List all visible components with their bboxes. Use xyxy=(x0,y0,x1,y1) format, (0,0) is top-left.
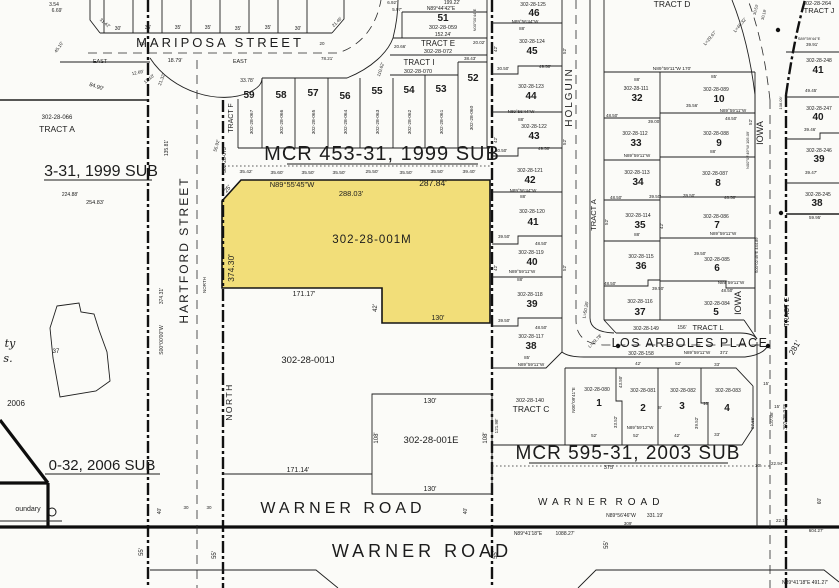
north-label: NORTH xyxy=(224,383,234,421)
map-label: 6.92' xyxy=(387,0,397,5)
map-label: 1 xyxy=(596,398,602,409)
map-label: N89°59'12"W xyxy=(627,425,655,430)
map-label: 130' xyxy=(423,398,436,405)
map-label: 35' xyxy=(145,25,152,31)
map-label: 39.50' xyxy=(498,234,510,239)
map-label: 41 xyxy=(527,217,539,228)
southwest-lines xyxy=(0,303,160,521)
map-label: 20 xyxy=(139,41,145,46)
map-label: 35.50' xyxy=(431,169,444,175)
map-label: 12.69' xyxy=(131,69,144,76)
map-label: 20.66' xyxy=(394,44,406,49)
map-label: 52' xyxy=(591,433,597,438)
map-label: 84.90' xyxy=(88,82,104,92)
map-label: 38 xyxy=(525,341,537,352)
map-label: 52' xyxy=(748,119,753,125)
map-label: 88' xyxy=(520,194,526,199)
map-label: 281' xyxy=(787,339,802,357)
map-label: 35' xyxy=(265,25,272,31)
map-label: N89°56'44"W xyxy=(510,188,538,193)
map-label: 40' xyxy=(463,508,469,515)
sub-2006-title: 0-32, 2006 SUB xyxy=(49,457,156,474)
street-name-iowa: IOWA xyxy=(755,121,765,145)
map-label: 53 xyxy=(435,84,447,95)
map-label: 309' xyxy=(624,521,633,526)
map-label: 97.66' xyxy=(750,417,755,429)
map-label: N89°56'44"W xyxy=(512,19,540,24)
map-label: 35.56' xyxy=(686,103,698,108)
map-label: 20 xyxy=(319,41,325,46)
map-label: 302-28-112 xyxy=(622,131,647,137)
map-label: N00°02'49"W 105.09' xyxy=(745,131,750,169)
map-label: 48.50' xyxy=(725,116,737,121)
map-label: 52 xyxy=(467,73,479,84)
map-label: 8' xyxy=(658,405,662,410)
map-label: 30.18' xyxy=(760,9,768,21)
tract-i-label: TRACT I xyxy=(404,58,435,67)
tract-c-label: TRACT C xyxy=(513,404,550,414)
map-label: 6 xyxy=(714,263,720,274)
map-label: 6.69' xyxy=(52,8,63,14)
map-label: 42' xyxy=(373,304,379,312)
map-label: N89°59'11"W xyxy=(720,108,747,113)
map-label: 156' xyxy=(677,325,686,331)
map-label: 88' xyxy=(634,77,640,82)
map-label: 152.24' xyxy=(435,32,451,38)
map-label: 55' xyxy=(139,548,145,556)
map-label: 36 xyxy=(635,261,647,272)
map-label: N89°41'18"E xyxy=(514,531,543,537)
map-label: 34 xyxy=(632,177,644,188)
map-label: 15' xyxy=(774,404,780,409)
map-label: 30' xyxy=(755,463,761,468)
tract-a-east-label: TRACT A xyxy=(589,199,598,231)
map-label: S00°00'00"W xyxy=(159,325,165,355)
map-label: 35.50' xyxy=(302,170,315,176)
map-label: 302-28-062 xyxy=(407,109,413,134)
map-label: NORTH xyxy=(202,277,207,293)
map-label: 302-28-063 xyxy=(375,109,381,134)
map-label: 171.17' xyxy=(293,291,316,298)
map-label: 37 xyxy=(53,349,60,355)
map-label: 51 xyxy=(437,13,449,24)
map-label: N89°41'18"E 491.27' xyxy=(782,580,828,586)
map-label: 302-28-083 xyxy=(715,388,741,394)
sub-1999-title: MCR 453-31, 1999 SUB xyxy=(264,143,500,165)
map-label: 35.60' xyxy=(271,170,284,176)
map-label: 35' xyxy=(235,26,242,32)
map-label: 48.50' xyxy=(606,113,618,118)
map-label: 78.21' xyxy=(321,56,333,61)
map-label: 302-28-248 xyxy=(806,58,832,64)
map-label: N89°59'11"W xyxy=(684,350,711,355)
map-label: 55' xyxy=(212,551,218,559)
map-label: 42' xyxy=(493,137,498,143)
map-label: N89°56'44"W xyxy=(508,109,536,114)
parcel-001e-apn: 302-28-001E xyxy=(404,435,459,446)
map-label: 39.52' xyxy=(694,417,699,429)
map-label: 302-28-119 xyxy=(518,250,543,256)
map-label: 56 xyxy=(339,91,351,102)
map-label: WARNER xyxy=(538,497,612,508)
street-name-los-arboles: LOS ARBOLES PLACE xyxy=(612,336,769,350)
map-label: 199.22' xyxy=(444,0,460,6)
street-name-holguin: HOLGUIN xyxy=(564,67,575,127)
map-label: 331.19' xyxy=(647,513,663,519)
map-label: 302-28-089 xyxy=(703,87,729,93)
map-label: 43.50' xyxy=(618,376,623,388)
map-label: N89°59'11"W xyxy=(518,362,545,367)
map-label: 57 xyxy=(307,88,319,99)
map-label: 39.50' xyxy=(498,318,510,323)
map-label: 3 xyxy=(679,401,685,412)
map-label: 302-28-082 xyxy=(670,388,696,394)
map-label: N00°09'41"E xyxy=(571,387,576,413)
map-label: 88' xyxy=(519,26,525,31)
map-label: 302-28-067 xyxy=(249,109,255,134)
map-label: 33' xyxy=(714,432,720,437)
map-label: 59 xyxy=(243,90,255,101)
tract-a-west-label: TRACT A xyxy=(39,124,75,134)
map-label: 9 xyxy=(716,138,722,149)
map-label: 22.12' xyxy=(776,518,788,523)
map-label: N89°59'11"W xyxy=(710,231,737,236)
map-label: 39.50' xyxy=(652,286,664,291)
map-label: 39.40' xyxy=(463,169,476,175)
map-label: S89°59'44"E xyxy=(798,36,821,41)
map-label: 35.42' xyxy=(240,169,253,175)
map-label: 302-28-111 xyxy=(624,86,649,92)
map-label: 54 xyxy=(403,85,415,96)
map-label: 52' xyxy=(675,361,681,366)
map-label: 49.50' xyxy=(538,146,550,151)
map-label: 55' xyxy=(493,551,499,559)
street-name-hartford: HARTFORD STREET xyxy=(177,176,191,323)
map-label: 108' xyxy=(374,432,380,443)
map-label: 302-28-088 xyxy=(703,131,729,137)
map-label: 135.81' xyxy=(164,140,170,156)
map-label: 171.14' xyxy=(287,467,310,474)
map-label: 35 xyxy=(634,220,646,231)
map-label: 38.43' xyxy=(464,56,476,61)
map-label: L=29.78' xyxy=(587,333,603,349)
map-label: 85' xyxy=(711,74,717,79)
map-label: 33' xyxy=(714,362,720,367)
map-label: 30' xyxy=(295,26,302,32)
map-label: 44 xyxy=(525,91,537,102)
map-label: 59.95' xyxy=(809,215,821,220)
map-label: 302-28-243 xyxy=(783,404,789,430)
street-name-warner-inner: WARNER ROAD xyxy=(260,500,425,517)
tract-l-label: TRACT L xyxy=(692,323,723,332)
map-label: 42' xyxy=(659,223,664,229)
map-label: 302-28-066 xyxy=(279,109,285,134)
map-label: 5.97' xyxy=(392,7,402,12)
map-label: 40' xyxy=(157,508,163,515)
map-label: 49.45' xyxy=(805,88,817,93)
map-label: EAST xyxy=(233,59,248,65)
map-label: 287.84' xyxy=(419,178,447,188)
map-label: 302-28-118 xyxy=(517,292,542,298)
map-label: 85' xyxy=(524,355,530,360)
map-label: 302-28-117 xyxy=(518,334,543,340)
map-label: 302-28-066 xyxy=(42,115,73,121)
map-label: 302-28-059 xyxy=(429,25,457,31)
map-label: 55' xyxy=(604,541,610,549)
map-label: N89°55'45"W xyxy=(270,180,316,189)
map-label: 371' xyxy=(720,350,729,355)
map-label: 39.00' xyxy=(648,119,660,124)
map-label: 48.50' xyxy=(535,325,547,330)
map-label: 130' xyxy=(423,486,436,493)
map-label: 302-28-158 xyxy=(628,351,654,357)
map-label: 7 xyxy=(714,220,720,231)
map-label: 224.88' xyxy=(62,192,78,198)
plat-map-canvas: 3.546.69'MARIPOSA STREETEAST18.79'EAST20… xyxy=(0,0,839,588)
map-label: 88' xyxy=(710,149,716,154)
map-label: 48.50' xyxy=(604,281,616,286)
map-label: oundary xyxy=(15,506,41,513)
map-label: 48.50' xyxy=(535,241,547,246)
map-label: 10 xyxy=(713,94,725,105)
map-label: 37 xyxy=(634,307,646,318)
map-label: 45.10' xyxy=(53,41,64,54)
tract-f-label: TRACT F xyxy=(228,103,235,132)
map-label: 22.94' xyxy=(771,461,783,466)
map-label: L=46.32' xyxy=(732,17,747,34)
map-label: 42 xyxy=(524,175,536,186)
subject-parcel-apn: 302-28-001M xyxy=(332,234,411,246)
map-label: 60' xyxy=(817,498,823,505)
map-label: 30.50' xyxy=(495,148,507,153)
map-label: 8 xyxy=(715,178,721,189)
map-label: 108.09' xyxy=(778,96,783,109)
map-label: 41 xyxy=(812,65,824,76)
parcel-001j-apn: 302-28-001J xyxy=(281,355,335,366)
map-label: 1088.27' xyxy=(555,531,574,537)
map-label: 30.50' xyxy=(497,66,509,71)
map-label: 40 xyxy=(812,112,824,123)
map-label: 42' xyxy=(493,46,498,52)
map-label: 30.53' xyxy=(752,4,760,16)
map-label: 302-28-116 xyxy=(627,299,652,305)
map-label: 33.78' xyxy=(240,78,254,84)
holguin-lot-lines xyxy=(492,0,614,368)
map-label: 88' xyxy=(517,277,523,282)
map-label: 39.50' xyxy=(683,193,695,198)
map-label: 35.50' xyxy=(333,170,346,176)
map-label: 302-28-114 xyxy=(625,213,650,219)
map-label: 302-28-120 xyxy=(519,209,545,215)
map-label: ROAD xyxy=(616,497,665,508)
map-label: 58 xyxy=(275,90,287,101)
map-label: 55.92' xyxy=(213,139,221,152)
map-label: 48.50' xyxy=(724,195,736,200)
map-label: 43 xyxy=(528,131,540,142)
map-label: 42' xyxy=(493,265,498,271)
map-label: 5 xyxy=(713,307,719,318)
map-label: L=29.67' xyxy=(702,30,717,47)
tract-j-label: TRACT J xyxy=(804,6,835,15)
map-label: 302-28-060 xyxy=(469,105,475,130)
highlighted-parcel[interactable] xyxy=(222,180,490,323)
map-label: 33.52' xyxy=(613,416,618,428)
map-label: 52' xyxy=(604,219,609,225)
map-label: 30 xyxy=(206,505,212,510)
sub-1999-left-fragment: 3-31, 1999 SUB xyxy=(44,163,158,180)
map-label: 4 xyxy=(724,403,730,414)
map-label: 302-28-070 xyxy=(404,69,432,75)
map-label: 130' xyxy=(431,315,444,322)
map-label: 39 xyxy=(813,154,825,165)
map-label: EAST xyxy=(93,59,108,65)
map-label: 302-28-065 xyxy=(311,109,317,134)
map-label: 39.91' xyxy=(806,42,818,47)
map-label: 45 xyxy=(526,46,538,57)
map-label: 137.08' xyxy=(769,412,774,427)
map-label: 302-28-061 xyxy=(439,109,445,134)
map-label: 52' xyxy=(633,433,639,438)
tract-e-label: TRACT E xyxy=(421,39,455,48)
map-label: 254.83' xyxy=(86,200,104,206)
map-label: 35' xyxy=(205,25,212,31)
map-label: N89°44'42"E xyxy=(427,6,456,12)
map-label: 302-28-072 xyxy=(424,49,452,55)
map-label: 31.42' xyxy=(99,17,112,29)
map-label: 38 xyxy=(811,198,823,209)
map-label: 30 xyxy=(183,505,189,510)
map-label: N89°59'11"W xyxy=(509,269,536,274)
map-label: 18.79' xyxy=(168,58,183,64)
map-label: 88' xyxy=(634,232,640,237)
map-label: 42' xyxy=(674,433,680,438)
map-label: 302-28-080 xyxy=(584,387,610,393)
map-label: 15' xyxy=(763,381,769,386)
map-label: 302-28-115 xyxy=(628,254,653,260)
map-label: 375' xyxy=(604,465,614,471)
map-label: 39.50' xyxy=(694,251,706,256)
map-label: 32 xyxy=(631,93,643,104)
map-label: 302-28-081 xyxy=(630,388,656,394)
map-label: 604.27' xyxy=(809,528,824,533)
map-label: 21.32' xyxy=(157,73,166,86)
sub-2003-title: MCR 595-31, 2003 SUB xyxy=(516,443,741,464)
map-label: 33 xyxy=(630,138,642,149)
street-name-warner-outer: WARNER ROAD xyxy=(332,541,512,561)
map-label: 39 xyxy=(526,299,538,310)
map-label: 35.50' xyxy=(400,170,413,176)
map-label: 46 xyxy=(528,8,540,19)
map-label: S00°02'49"E 444.89' xyxy=(754,236,759,273)
map-label: 2 xyxy=(640,403,646,414)
tract-e-east-label: TRACT E xyxy=(784,297,791,327)
map-label: N89°59'11"W xyxy=(624,153,651,158)
map-label: 302-28-149 xyxy=(633,326,659,332)
map-label: 52' xyxy=(562,265,567,271)
map-label: 39.46' xyxy=(804,127,816,132)
map-label: 39.50' xyxy=(649,194,661,199)
map-label: 35' xyxy=(175,25,182,31)
map-label: 302-28-073 xyxy=(222,147,228,173)
map-label: 374.30' xyxy=(226,254,236,282)
map-label: 52' xyxy=(562,48,567,54)
map-label: 302-28-122 xyxy=(521,124,547,130)
map-label: s. xyxy=(3,352,12,365)
tract-d-label: TRACT D xyxy=(654,0,691,9)
plat-map: 3.546.69'MARIPOSA STREETEAST18.79'EAST20… xyxy=(0,0,839,588)
map-label: N00°00'44"E xyxy=(472,8,477,31)
map-label: 302-28-123 xyxy=(518,84,544,90)
map-label: 88' xyxy=(518,117,524,122)
map-label: 302-28-124 xyxy=(519,39,545,45)
map-label: 302-28-113 xyxy=(624,170,649,176)
map-label: 302-28-064 xyxy=(343,109,349,134)
map-label: N89°56'46"W xyxy=(606,513,636,519)
map-label: 288.03' xyxy=(339,189,364,198)
map-label: 39.47' xyxy=(805,170,817,175)
map-label: 49.50' xyxy=(539,64,551,69)
map-label: 48.50' xyxy=(610,195,622,200)
map-label: 10' xyxy=(703,401,709,406)
map-label: 108' xyxy=(483,432,489,443)
map-label: 40 xyxy=(526,257,538,268)
map-label: 302-28-087 xyxy=(702,171,728,177)
map-label: 121.98' xyxy=(494,419,499,434)
map-label: 2006 xyxy=(7,399,25,408)
map-label: 42' xyxy=(635,361,641,366)
map-label: L=50.26' xyxy=(582,301,590,319)
map-label: 52' xyxy=(562,139,567,145)
map-label: 55 xyxy=(371,86,383,97)
map-label: N89°59'11"W xyxy=(718,280,745,285)
street-name-mariposa: MARIPOSA STREET xyxy=(136,35,304,50)
map-label: 374.31' xyxy=(159,288,165,304)
map-label: 30' xyxy=(115,26,122,32)
map-label: 25.50' xyxy=(366,169,379,175)
map-label: ty xyxy=(5,337,16,350)
map-label: 48.50' xyxy=(721,288,733,293)
street-name-iowa-2: IOWA xyxy=(733,291,743,315)
map-label: 110.62' xyxy=(376,62,385,77)
map-label: 12.10' xyxy=(143,73,156,85)
map-label: 302-28-121 xyxy=(517,168,543,174)
map-label: 20.02' xyxy=(473,40,485,45)
south-parcel-lines xyxy=(150,570,839,588)
map-label: N89°59'11"W 170' xyxy=(653,66,692,72)
